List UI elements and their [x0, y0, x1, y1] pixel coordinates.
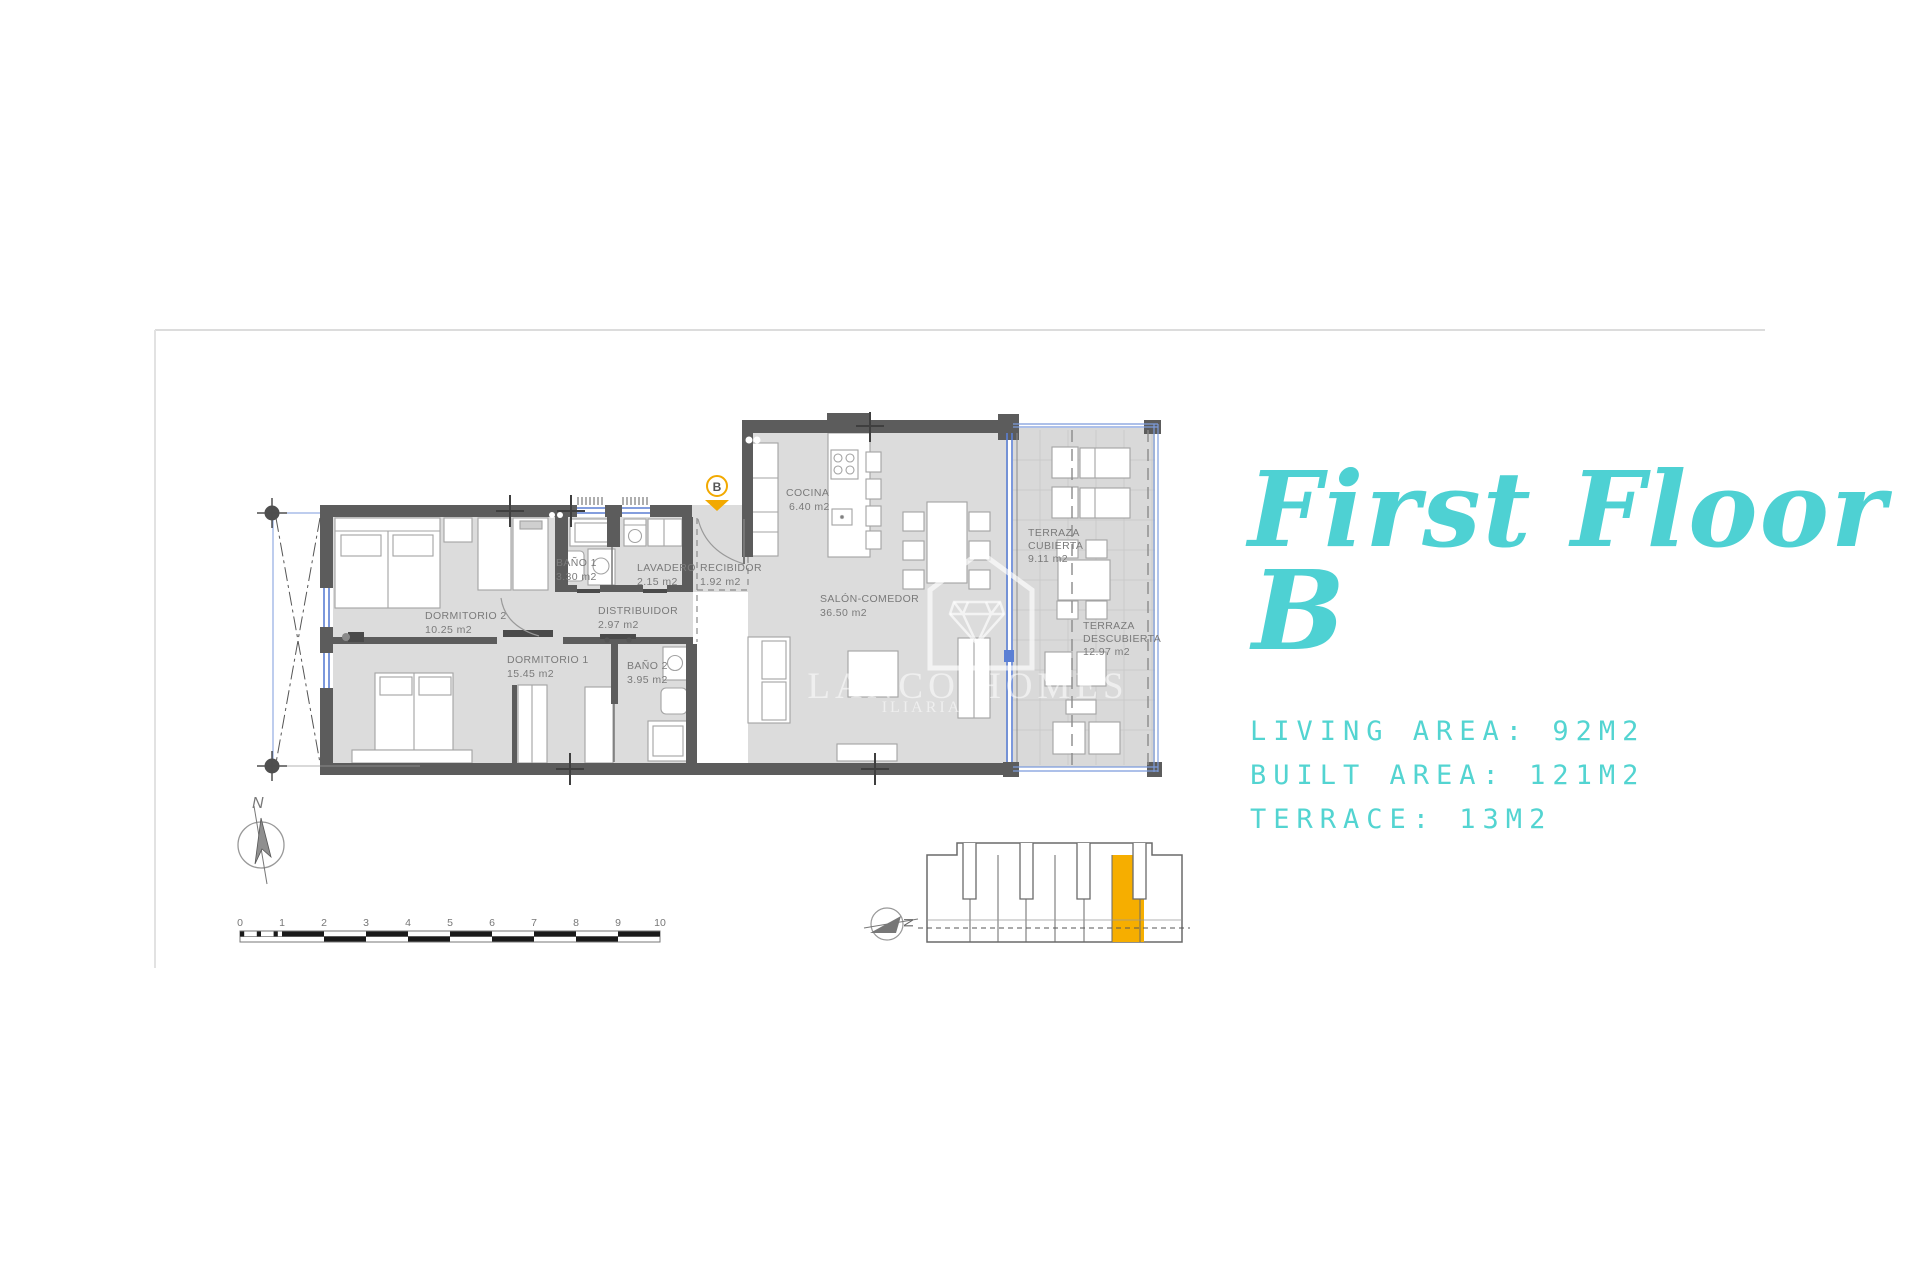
svg-text:5: 5	[447, 917, 453, 929]
area-stats: LIVING AREA: 92M2 BUILT AREA: 121M2 TERR…	[1250, 716, 1645, 848]
svg-text:3: 3	[363, 917, 369, 929]
room-label-area: 2.15 m2	[637, 576, 678, 588]
room-label-area: 12.97 m2	[1083, 646, 1130, 658]
room-label-name: RECIBIDOR	[700, 562, 762, 574]
sideboard	[837, 744, 897, 761]
svg-text:2: 2	[321, 917, 327, 929]
page-title-line2: B	[1252, 556, 1345, 666]
room-label-name: CUBIERTA	[1028, 540, 1083, 552]
room-label-name: SALÓN-COMEDOR	[820, 592, 919, 605]
keyplan-north-arrow-icon	[870, 916, 901, 933]
room-label-area: 6.40 m2	[789, 501, 830, 513]
room-label-area: 36.50 m2	[820, 607, 867, 619]
svg-text:10: 10	[654, 917, 666, 929]
room-label-name: DORMITORIO 2	[425, 610, 507, 622]
room-label-area: 1.92 m2	[700, 576, 741, 588]
living-area-stat: LIVING AREA: 92M2	[1250, 716, 1645, 747]
svg-text:6: 6	[489, 917, 495, 929]
room-label-area: 10.25 m2	[425, 624, 472, 636]
scale-bar: 0 1 2 3 4 5 6 7 8 9 10	[237, 917, 666, 942]
keyplan-compass: N	[864, 908, 918, 940]
keyplan-north-label: N	[901, 918, 916, 927]
svg-text:7: 7	[531, 917, 537, 929]
room-label-name: TERRAZA	[1028, 527, 1080, 539]
room-label-area: 9.11 m2	[1028, 553, 1068, 565]
room-label-name: LAVADERO	[637, 562, 696, 574]
entry-badge-letter: B	[713, 480, 722, 494]
room-label-name: DORMITORIO 1	[507, 654, 589, 666]
nightstand	[444, 518, 472, 542]
column-markers	[257, 498, 287, 781]
room-label-area: 3.95 m2	[627, 674, 668, 686]
watermark-line1: LANCO HOMES	[807, 666, 1128, 707]
room-label-area: 2.97 m2	[598, 619, 639, 631]
watermark-line2: ILIARIA	[882, 699, 963, 716]
floorplan-page: LANCO HOMES ILIARIA DORMITORIO 2 10.25 m…	[0, 0, 1920, 1280]
room-label-name: DESCUBIERTA	[1083, 633, 1161, 645]
svg-text:9: 9	[615, 917, 621, 929]
room-label-name: BAÑO 2	[627, 659, 668, 672]
room-label-area: 3.30 m2	[556, 571, 597, 583]
svg-text:4: 4	[405, 917, 411, 929]
sofa	[748, 637, 790, 723]
svg-text:1: 1	[279, 917, 285, 929]
north-compass: N	[238, 795, 284, 884]
room-label-name: DISTRIBUIDOR	[598, 605, 678, 617]
room-label-name: TERRAZA	[1083, 620, 1135, 632]
washer	[624, 519, 682, 546]
svg-text:8: 8	[573, 917, 579, 929]
key-plan: N	[864, 843, 1190, 942]
built-area-stat: BUILT AREA: 121M2	[1250, 760, 1645, 791]
terrace-stat: TERRACE: 13M2	[1250, 804, 1645, 835]
kitchen-island	[828, 433, 881, 557]
room-label-name: COCINA	[786, 487, 829, 499]
north-label: N	[252, 795, 264, 812]
svg-text:0: 0	[237, 917, 243, 929]
wardrobe-dormitorio2	[478, 518, 548, 590]
kitchen-counter	[752, 443, 778, 556]
floor-plan-drawing: LANCO HOMES ILIARIA DORMITORIO 2 10.25 m…	[0, 0, 1920, 1280]
bed-dormitorio2	[335, 518, 440, 608]
room-label-area: 15.45 m2	[507, 668, 554, 680]
room-label-name: BAÑO 1	[556, 556, 597, 569]
